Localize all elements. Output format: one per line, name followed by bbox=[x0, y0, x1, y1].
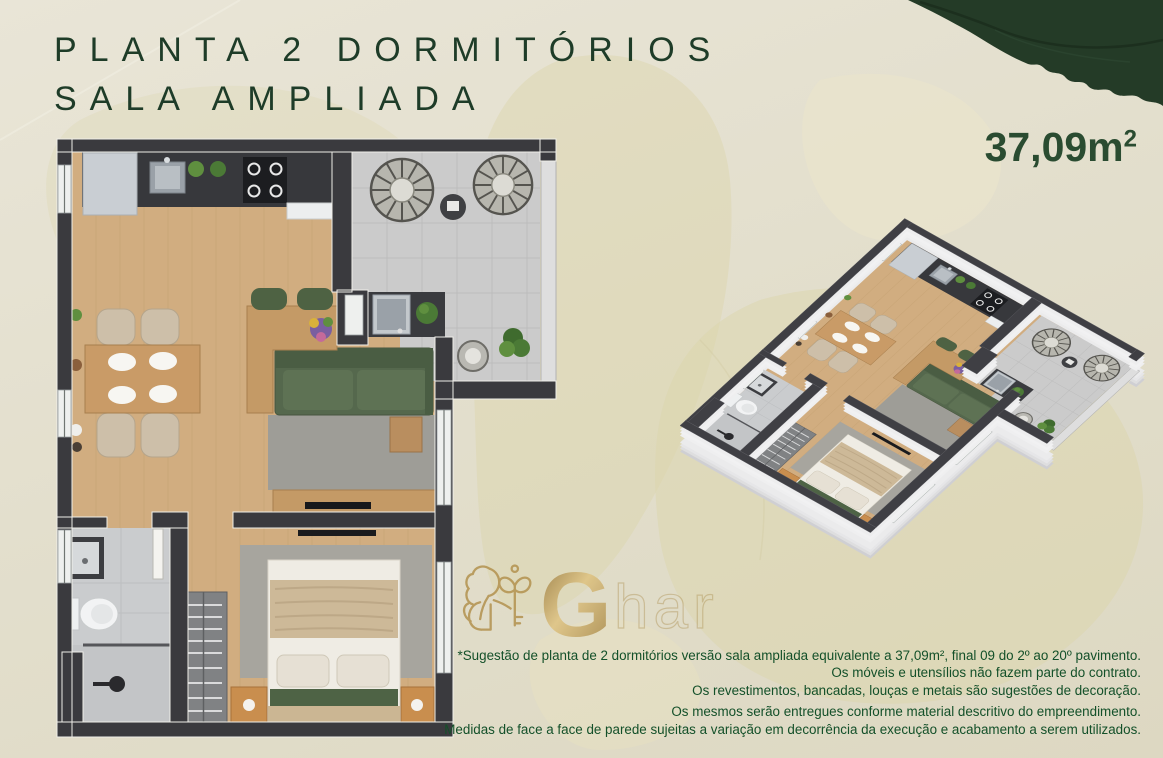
disclaimer-block: *Sugestão de planta de 2 dormitórios ver… bbox=[381, 647, 1141, 738]
disclaimer-line: Medidas de face a face de parede sujeita… bbox=[381, 721, 1141, 738]
area-superscript: 2 bbox=[1124, 125, 1137, 152]
area-value: 37,09m bbox=[985, 124, 1124, 170]
disclaimer-line: Os móveis e utensílios não fazem parte d… bbox=[381, 664, 1141, 681]
page-title: PLANTA 2 DORMITÓRIOS SALA AMPLIADA bbox=[54, 26, 723, 124]
floor-plan-marketing-page: { "header": { "title_line1": "PLANTA 2 D… bbox=[0, 0, 1163, 758]
title-line-1: PLANTA 2 DORMITÓRIOS bbox=[54, 26, 723, 75]
title-line-2: SALA AMPLIADA bbox=[54, 75, 723, 124]
disclaimer-line: Os revestimentos, bancadas, louças e met… bbox=[381, 682, 1141, 699]
disclaimer-line: *Sugestão de planta de 2 dormitórios ver… bbox=[381, 647, 1141, 664]
disclaimer-line: Os mesmos serão entregues conforme mater… bbox=[381, 703, 1141, 720]
area-badge: 37,09m2 bbox=[985, 124, 1137, 171]
brand-rest: har bbox=[614, 573, 719, 642]
brand-initial: G bbox=[540, 554, 612, 656]
tropical-leaf-decoration bbox=[908, 0, 1163, 106]
